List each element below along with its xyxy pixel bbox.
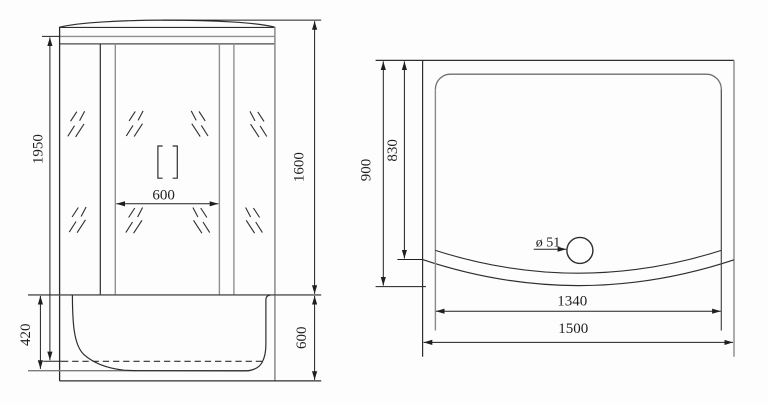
svg-text:1950: 1950 xyxy=(31,134,47,164)
svg-text:830: 830 xyxy=(385,139,401,162)
svg-text:1500: 1500 xyxy=(558,321,588,337)
svg-text:1600: 1600 xyxy=(292,152,308,182)
svg-text:600: 600 xyxy=(152,187,175,203)
svg-text:900: 900 xyxy=(359,159,375,182)
svg-text:ø 51: ø 51 xyxy=(536,236,561,251)
svg-text:420: 420 xyxy=(18,324,34,347)
svg-text:600: 600 xyxy=(294,326,310,349)
svg-text:1340: 1340 xyxy=(557,294,587,310)
